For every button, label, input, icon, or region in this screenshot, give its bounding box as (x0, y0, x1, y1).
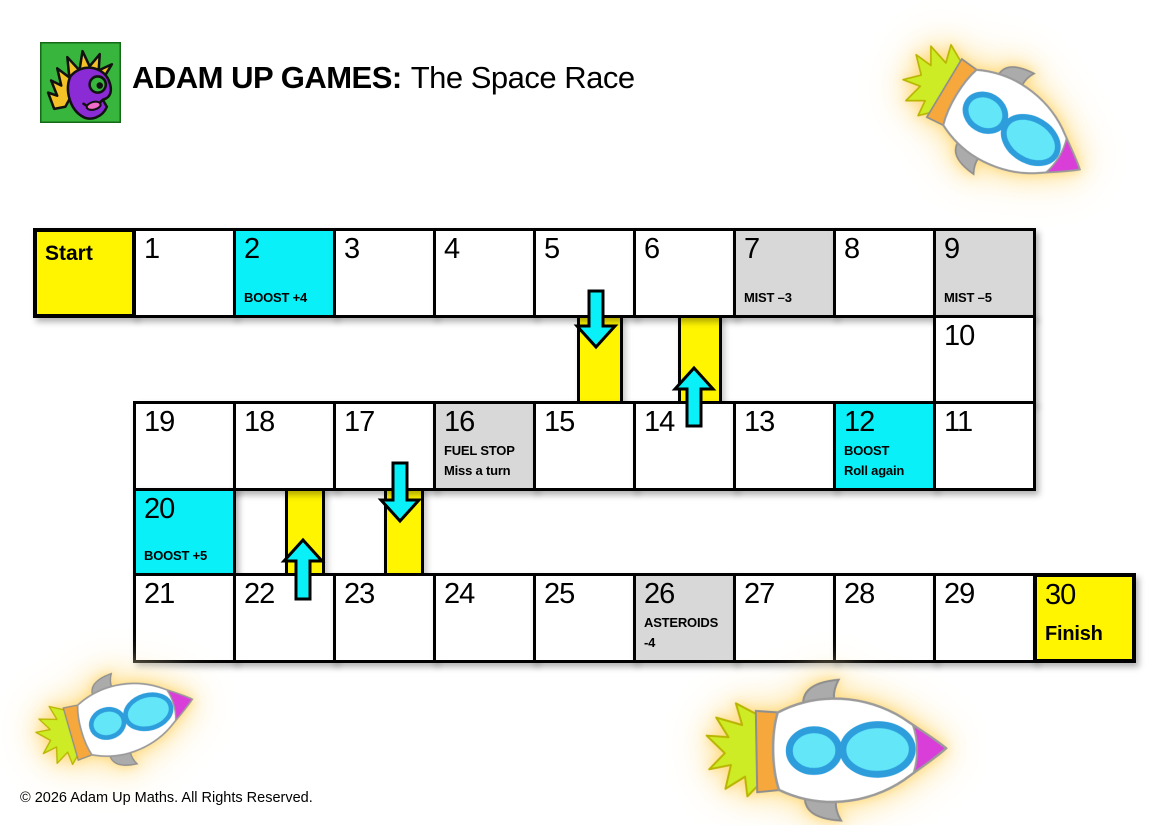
cell-7: 7MIST –3 (733, 228, 836, 318)
cell-note: MIST –3 (744, 288, 792, 308)
cell-15: 15 (533, 401, 636, 491)
chute-5-to-15 (577, 313, 623, 406)
cell-18: 18 (233, 401, 336, 491)
cell-10: 10 (933, 315, 1036, 404)
cell-21: 21 (133, 573, 236, 663)
cell-note: MIST –5 (944, 288, 992, 308)
cell-11: 11 (933, 401, 1036, 491)
brand-name: ADAM UP GAMES: (132, 60, 402, 95)
cell-30: 30Finish (1033, 573, 1136, 663)
rocket-illustration (868, 8, 1116, 225)
cell-label: 15 (544, 406, 574, 439)
rocket-window-1 (789, 729, 839, 772)
page-title: ADAM UP GAMES:The Space Race (132, 60, 635, 96)
cell-2: 2BOOST +4 (233, 228, 336, 318)
cell-label: 3 (344, 233, 359, 266)
rocket-flame (706, 703, 761, 797)
cell-9: 9MIST –5 (933, 228, 1036, 318)
cell-28: 28 (833, 573, 936, 663)
cell-12: 12BOOSTRoll again (833, 401, 936, 491)
cell-4: 4 (433, 228, 536, 318)
rocket-window-2 (842, 724, 912, 775)
cell-14: 14 (633, 401, 736, 491)
cell-8: 8 (833, 228, 936, 318)
cell-label: 23 (344, 578, 374, 611)
cell-5: 5 (533, 228, 636, 318)
cell-22: 22 (233, 573, 336, 663)
cell-label: 28 (844, 578, 874, 611)
cell-26: 26ASTEROIDS-4 (633, 573, 736, 663)
cell-1: 1 (133, 228, 236, 318)
cell-label: 26 (644, 578, 674, 611)
chute-14-to-6 (678, 313, 722, 406)
chute-22-to-18 (285, 486, 325, 578)
monster-head (68, 68, 111, 119)
rocket-nose (913, 724, 947, 772)
cell-label: 8 (844, 233, 859, 266)
cell-17: 17 (333, 401, 436, 491)
cell-24: 24 (433, 573, 536, 663)
cell-label: 22 (244, 578, 274, 611)
cell-label: 25 (544, 578, 574, 611)
cell-label: 12 (844, 406, 874, 439)
cell-6: 6 (633, 228, 736, 318)
cell-label: 21 (144, 578, 174, 611)
cell-label: 1 (144, 233, 159, 266)
cell-note: BOOST +4 (244, 288, 307, 308)
cell-note: BOOSTRoll again (844, 441, 904, 481)
cell-note: ASTEROIDS-4 (644, 613, 718, 653)
cell-label: 5 (544, 233, 559, 266)
cell-label: 14 (644, 406, 674, 439)
game-title: The Space Race (411, 60, 635, 95)
cell-label: 24 (444, 578, 474, 611)
cell-label: 7 (744, 233, 759, 266)
cell-label: 27 (744, 578, 774, 611)
cell-label: 19 (144, 406, 174, 439)
rocket-illustration (18, 650, 211, 793)
cell-16: 16FUEL STOPMiss a turn (433, 401, 536, 491)
adam-up-games-logo (40, 42, 121, 123)
cell-label: 11 (944, 406, 972, 439)
cell-label: 18 (244, 406, 274, 439)
cell-19: 19 (133, 401, 236, 491)
cell-label: 10 (944, 320, 974, 353)
cell-label: 6 (644, 233, 659, 266)
cell-25: 25 (533, 573, 636, 663)
cell-label: 9 (944, 233, 959, 266)
cell-label: 17 (344, 406, 374, 439)
rocket-top-right (868, 8, 1116, 225)
cell-note: Finish (1045, 619, 1103, 650)
chute-17-to-23 (384, 486, 424, 578)
cell-label: 29 (944, 578, 974, 611)
cell-27: 27 (733, 573, 836, 663)
page: ADAM UP GAMES:The Space Race Start12BOOS… (0, 0, 1164, 825)
rocket-illustration (694, 674, 955, 825)
cell-start: Start (33, 228, 136, 318)
rocket-bottom-center (694, 674, 955, 825)
cell-label: 30 (1045, 579, 1075, 612)
cell-label: 4 (444, 233, 459, 266)
cell-23: 23 (333, 573, 436, 663)
rocket-bottom-left (18, 650, 211, 793)
cell-label: 13 (744, 406, 774, 439)
cell-label: Start (45, 242, 93, 266)
cell-3: 3 (333, 228, 436, 318)
cell-20: 20BOOST +5 (133, 488, 236, 576)
cell-label: 20 (144, 493, 174, 526)
copyright-text: © 2026 Adam Up Maths. All Rights Reserve… (20, 790, 313, 806)
cell-13: 13 (733, 401, 836, 491)
cell-label: 2 (244, 233, 259, 266)
cell-note: FUEL STOPMiss a turn (444, 441, 515, 481)
cell-label: 16 (444, 406, 474, 439)
cell-29: 29 (933, 573, 1036, 663)
cell-note: BOOST +5 (144, 546, 207, 566)
